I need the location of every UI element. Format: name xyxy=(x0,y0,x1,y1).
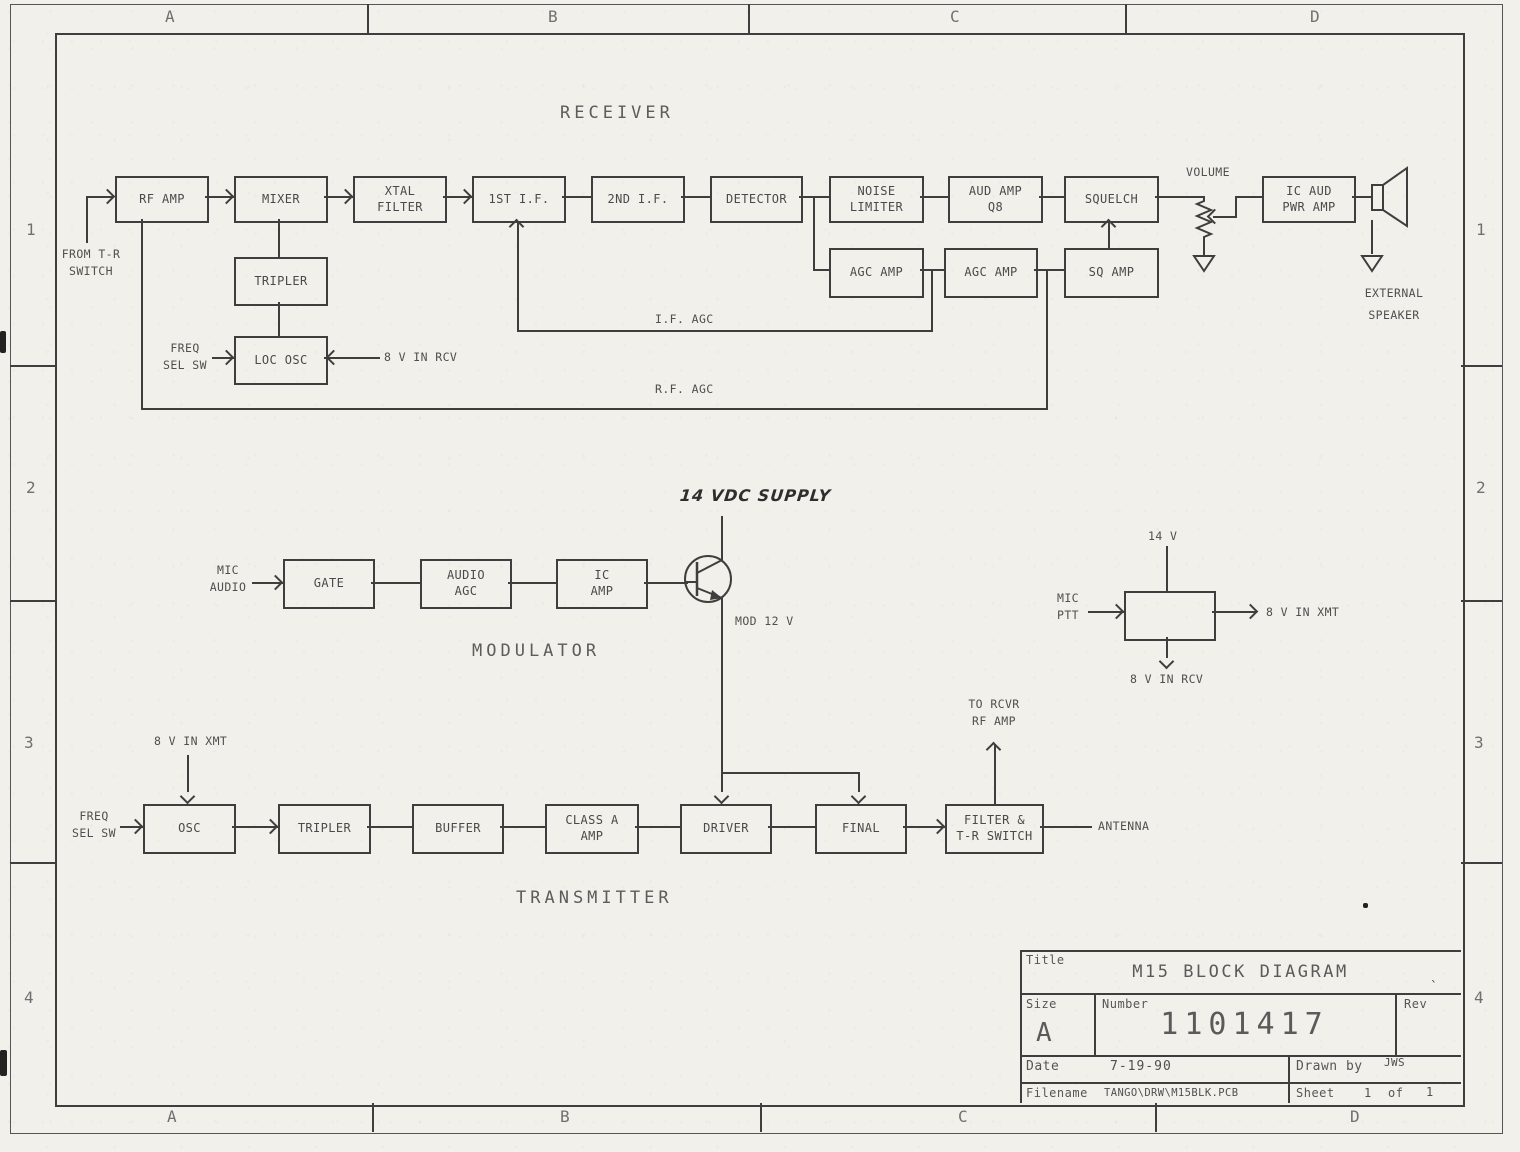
zone-letter: B xyxy=(560,1107,570,1126)
title-block-border xyxy=(1288,1055,1290,1103)
wire xyxy=(500,826,545,828)
title-block-border xyxy=(1020,1082,1461,1084)
wire xyxy=(681,196,710,198)
zone-number: 2 xyxy=(1476,478,1486,497)
zone-tick xyxy=(10,862,55,864)
external-speaker-label: EXTERNAL SPEAKER xyxy=(1355,283,1433,327)
zone-tick xyxy=(1461,365,1502,367)
block-buffer: BUFFER xyxy=(412,804,504,854)
block-final: FINAL xyxy=(815,804,907,854)
wire xyxy=(508,582,556,584)
modulator-heading: MODULATOR xyxy=(472,641,600,661)
block-squelch: SQUELCH xyxy=(1064,176,1159,223)
wire xyxy=(920,196,948,198)
wire xyxy=(1371,220,1373,254)
filename-field-label: Filename xyxy=(1026,1086,1088,1100)
scan-artifact xyxy=(0,1050,7,1076)
zone-number: 1 xyxy=(26,220,36,239)
scan-artifact xyxy=(1363,903,1368,908)
block-audio-agc: AUDIO AGC xyxy=(420,559,512,609)
zone-tick xyxy=(1155,1103,1157,1132)
title-block-border xyxy=(1020,950,1461,952)
block-filter-tr-switch: FILTER & T-R SWITCH xyxy=(945,804,1044,854)
number-value: 1101417 xyxy=(1094,1002,1395,1047)
drawing-title: M15 BLOCK DIAGRAM xyxy=(1020,960,1461,986)
block-ic-amp: IC AMP xyxy=(556,559,648,609)
zone-letter: D xyxy=(1310,7,1320,26)
zone-number: 4 xyxy=(1474,988,1484,1007)
wire xyxy=(813,197,815,270)
block-ic-aud-pwr-amp: IC AUD PWR AMP xyxy=(1262,176,1356,223)
zone-tick xyxy=(748,4,750,33)
freq-sel-sw-label: FREQ SEL SW xyxy=(158,340,212,375)
zone-letter: D xyxy=(1350,1107,1360,1126)
wire xyxy=(187,755,189,792)
block-class-a-amp: CLASS A AMP xyxy=(545,804,639,854)
wire xyxy=(141,408,1048,410)
block-osc: OSC xyxy=(143,804,236,854)
zone-letter: C xyxy=(958,1107,968,1126)
zone-letter: C xyxy=(950,7,960,26)
ptt-switch-box xyxy=(1124,591,1216,641)
drawn-by-value: JWS xyxy=(1384,1055,1405,1072)
wire xyxy=(1203,242,1205,255)
zone-tick xyxy=(1125,4,1127,33)
freq-sel-sw-tx-label: FREQ SEL SW xyxy=(66,808,122,843)
block-tripler-rx: TRIPLER xyxy=(234,257,328,306)
rev-field-label: Rev xyxy=(1404,997,1427,1011)
size-field-label: Size xyxy=(1026,997,1057,1011)
mod-12v-label: MOD 12 V xyxy=(735,613,794,630)
sheet-of-label: of xyxy=(1388,1086,1403,1100)
wire xyxy=(141,219,143,410)
block-xtal-filter: XTAL FILTER xyxy=(353,176,447,223)
8v-in-rcv-label: 8 V IN RCV xyxy=(384,349,457,366)
8v-in-xmt-tx-label: 8 V IN XMT xyxy=(154,733,227,750)
scan-artifact xyxy=(0,331,6,353)
zone-tick xyxy=(10,600,55,602)
zone-letter: A xyxy=(167,1107,177,1126)
block-agc-amp-2: AGC AMP xyxy=(944,248,1038,298)
ground-icon xyxy=(1193,255,1215,272)
zone-number: 3 xyxy=(1474,733,1484,752)
block-noise-limiter: NOISE LIMITER xyxy=(829,176,924,223)
wire xyxy=(644,582,688,584)
transistor-icon xyxy=(686,550,746,610)
zone-tick xyxy=(760,1103,762,1132)
antenna-label: ANTENNA xyxy=(1098,818,1149,835)
title-block-border xyxy=(1395,993,1397,1055)
zone-tick xyxy=(367,4,369,33)
ground-icon xyxy=(1361,255,1383,272)
wire xyxy=(1034,269,1064,271)
wire xyxy=(1040,826,1092,828)
wire xyxy=(278,219,280,257)
size-value: A xyxy=(1036,1014,1052,1053)
wire xyxy=(517,330,933,332)
wire xyxy=(1352,196,1372,198)
wire xyxy=(86,196,88,243)
date-field-label: Date xyxy=(1026,1059,1059,1074)
wire xyxy=(371,582,420,584)
wire xyxy=(1046,269,1048,410)
wire xyxy=(367,826,412,828)
sheet-total: 1 xyxy=(1426,1083,1434,1101)
wire xyxy=(768,826,815,828)
zone-tick xyxy=(372,1103,374,1132)
volume-label: VOLUME xyxy=(1186,164,1230,181)
zone-letter: B xyxy=(548,7,558,26)
zone-tick xyxy=(1461,600,1502,602)
block-2nd-if: 2ND I.F. xyxy=(591,176,685,223)
rf-agc-label: R.F. AGC xyxy=(655,381,714,398)
zone-tick xyxy=(1461,862,1502,864)
zone-number: 1 xyxy=(1476,220,1486,239)
wire xyxy=(931,269,933,332)
zone-tick xyxy=(10,365,55,367)
14v-label: 14 V xyxy=(1148,528,1177,545)
if-agc-label: I.F. AGC xyxy=(655,311,714,328)
8v-in-xmt-out-label: 8 V IN XMT xyxy=(1266,604,1339,621)
speaker-icon xyxy=(1370,166,1410,228)
block-1st-if: 1ST I.F. xyxy=(472,176,566,223)
block-aud-amp: AUD AMP Q8 xyxy=(948,176,1043,223)
zone-number: 2 xyxy=(26,478,36,497)
rev-mark: ` xyxy=(1430,978,1438,998)
zone-letter: A xyxy=(165,7,175,26)
wire xyxy=(1166,546,1168,591)
block-loc-osc: LOC OSC xyxy=(234,336,328,385)
schematic-sheet: A B C D A B C D 1 2 3 4 1 2 3 4 RECEIVER… xyxy=(0,0,1520,1152)
mic-audio-label: MIC AUDIO xyxy=(204,562,252,597)
wire xyxy=(1235,196,1262,198)
block-mixer: MIXER xyxy=(234,176,328,223)
sheet-number: 1 xyxy=(1364,1084,1372,1102)
wire xyxy=(562,196,591,198)
filename-value: TANGO\DRW\M15BLK.PCB xyxy=(1104,1086,1238,1102)
block-rf-amp: RF AMP xyxy=(115,176,209,223)
wire xyxy=(813,269,829,271)
zone-number: 4 xyxy=(24,988,34,1007)
block-agc-amp-1: AGC AMP xyxy=(829,248,924,298)
from-tr-switch-label: FROM T-R SWITCH xyxy=(52,246,130,281)
zone-number: 3 xyxy=(24,733,34,752)
wire xyxy=(721,772,860,774)
block-sq-amp: SQ AMP xyxy=(1064,248,1159,298)
date-value: 7-19-90 xyxy=(1110,1057,1172,1077)
wire xyxy=(721,597,723,792)
block-driver: DRIVER xyxy=(680,804,772,854)
supply-label: 14 VDC SUPPLY xyxy=(679,486,832,505)
block-tripler-tx: TRIPLER xyxy=(278,804,371,854)
wire xyxy=(635,826,680,828)
block-detector: DETECTOR xyxy=(710,176,803,223)
mic-ptt-label: MIC PTT xyxy=(1046,590,1090,625)
wire xyxy=(278,302,280,336)
8v-in-rcv-out-label: 8 V IN RCV xyxy=(1130,671,1203,688)
sheet-field-label: Sheet xyxy=(1296,1086,1335,1100)
transmitter-heading: TRANSMITTER xyxy=(516,888,673,908)
block-gate: GATE xyxy=(283,559,375,609)
receiver-heading: RECEIVER xyxy=(560,103,674,123)
wire xyxy=(1235,196,1237,217)
wire xyxy=(517,221,519,332)
drawn-by-field-label: Drawn by xyxy=(1296,1059,1363,1074)
wire xyxy=(1213,216,1237,218)
to-rcvr-label: TO RCVR RF AMP xyxy=(958,696,1030,731)
wire xyxy=(1039,196,1064,198)
